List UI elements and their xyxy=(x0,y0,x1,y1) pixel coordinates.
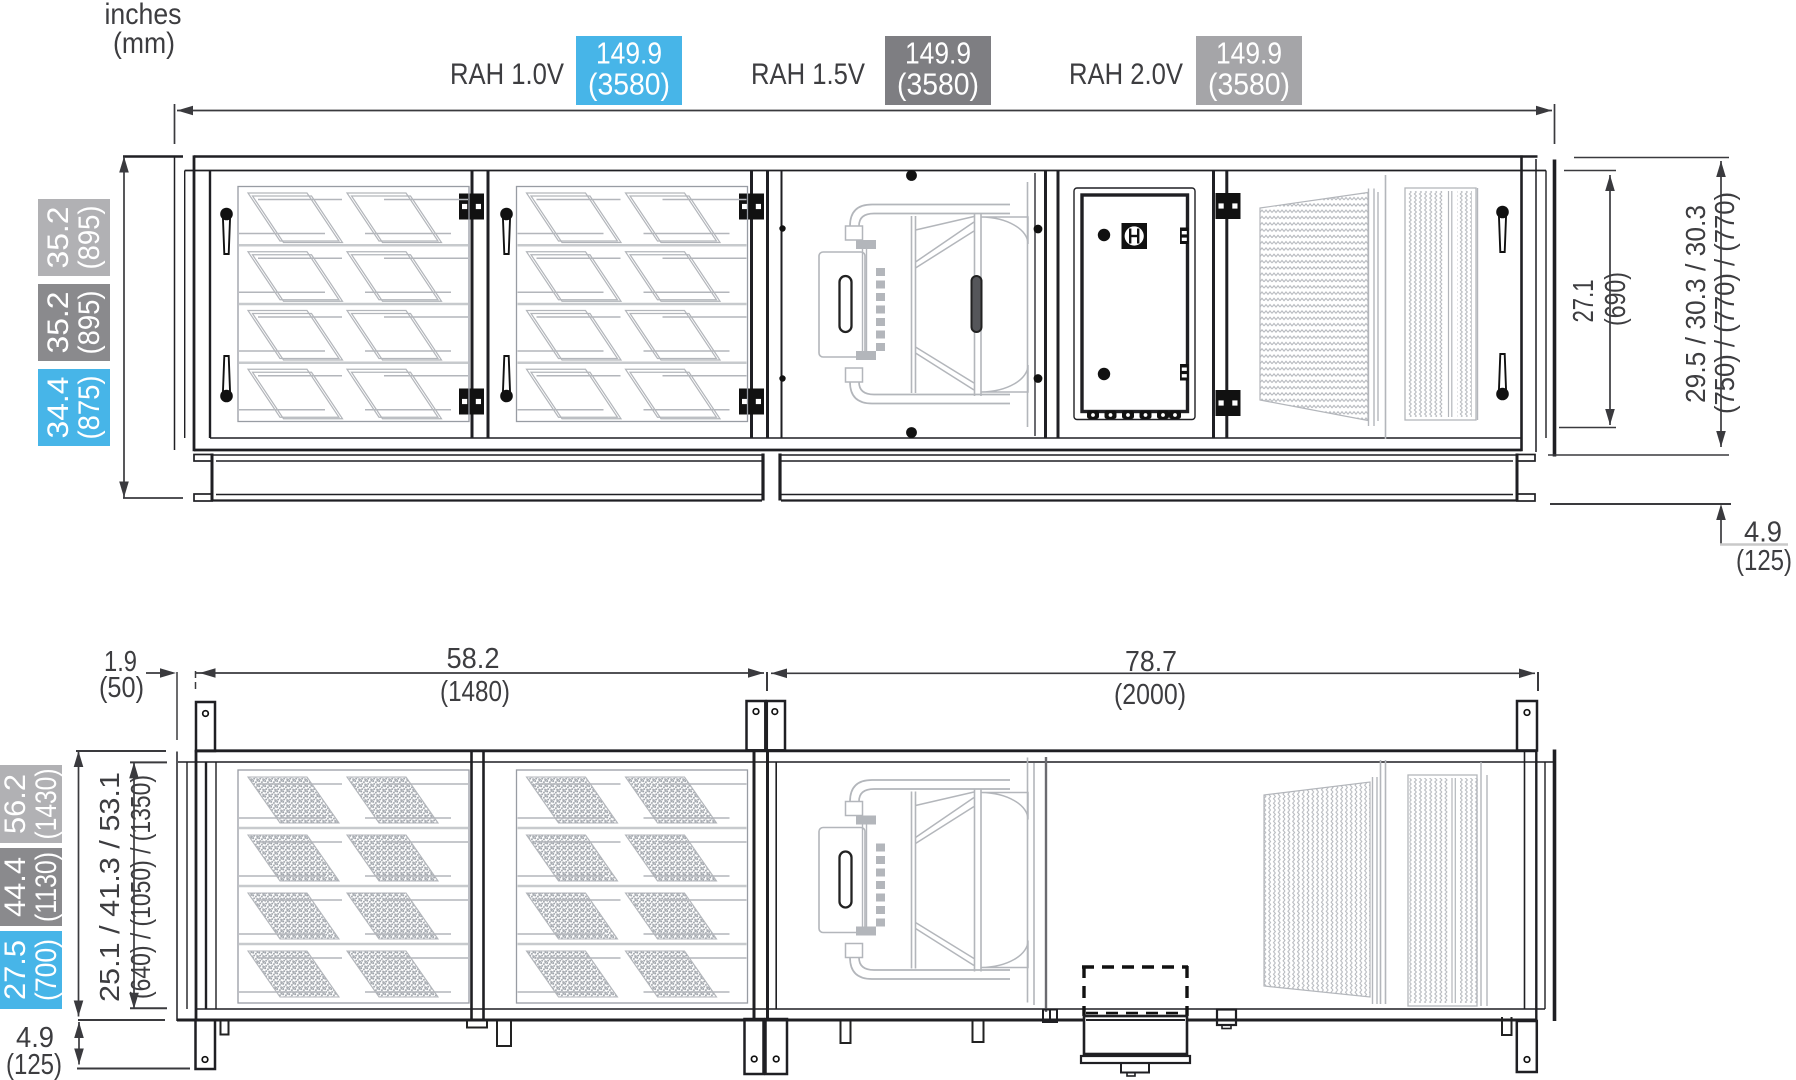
svg-text:(875): (875) xyxy=(73,376,106,440)
svg-text:(125): (125) xyxy=(6,1049,62,1080)
svg-text:4.9: 4.9 xyxy=(1744,517,1782,549)
svg-text:34.4: 34.4 xyxy=(42,377,75,439)
svg-text:(3580): (3580) xyxy=(588,67,670,102)
svg-text:29.5 / 30.3 / 30.3: 29.5 / 30.3 / 30.3 xyxy=(1680,205,1711,403)
svg-text:(1480): (1480) xyxy=(440,676,510,708)
svg-text:(1430): (1430) xyxy=(30,769,63,840)
svg-text:149.9: 149.9 xyxy=(905,36,971,71)
svg-text:(750) / (770) / (770): (750) / (770) / (770) xyxy=(1709,192,1740,414)
svg-text:35.2: 35.2 xyxy=(42,207,75,269)
svg-text:149.9: 149.9 xyxy=(596,36,662,71)
svg-text:56.2: 56.2 xyxy=(0,774,32,834)
svg-text:RAH 2.0V: RAH 2.0V xyxy=(1069,58,1183,91)
svg-text:(125): (125) xyxy=(1736,545,1792,577)
svg-text:25.1 / 41.3 / 53.1: 25.1 / 41.3 / 53.1 xyxy=(94,772,125,1002)
svg-text:149.9: 149.9 xyxy=(1216,36,1282,71)
svg-text:(3580): (3580) xyxy=(1208,67,1290,102)
svg-text:(690): (690) xyxy=(1600,272,1632,326)
svg-text:27.5: 27.5 xyxy=(0,940,32,1000)
svg-text:44.4: 44.4 xyxy=(0,857,32,917)
svg-text:(2000): (2000) xyxy=(1114,679,1186,711)
svg-text:35.2: 35.2 xyxy=(42,292,75,354)
svg-text:(640) / (1050) / (1350): (640) / (1050) / (1350) xyxy=(125,775,156,999)
svg-text:(3580): (3580) xyxy=(897,67,979,102)
svg-text:(mm): (mm) xyxy=(113,27,175,60)
svg-text:(50): (50) xyxy=(99,672,144,704)
svg-text:(895): (895) xyxy=(73,291,106,355)
svg-text:(700): (700) xyxy=(30,939,63,1001)
svg-text:58.2: 58.2 xyxy=(447,643,500,675)
svg-text:RAH 1.0V: RAH 1.0V xyxy=(450,58,564,91)
svg-text:27.1: 27.1 xyxy=(1568,280,1600,323)
svg-text:RAH 1.5V: RAH 1.5V xyxy=(751,58,865,91)
svg-text:(895): (895) xyxy=(73,206,106,270)
svg-text:(1130): (1130) xyxy=(30,852,63,922)
svg-text:78.7: 78.7 xyxy=(1125,646,1177,678)
